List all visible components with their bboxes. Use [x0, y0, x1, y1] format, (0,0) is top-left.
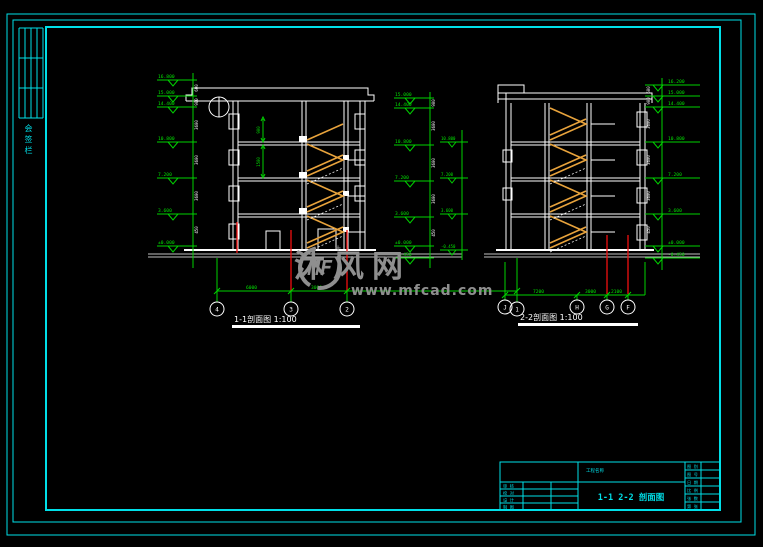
- segment-dim: 900: [194, 98, 199, 106]
- level-value: 10.800: [395, 139, 412, 145]
- section1-windows: [229, 114, 365, 239]
- level-value: 10.800: [158, 136, 175, 142]
- axis-number: 4: [215, 307, 219, 314]
- level-value: 10.800: [668, 136, 685, 142]
- titleblock-row-label: 审 核: [503, 483, 515, 490]
- level-value: 7.200: [441, 172, 454, 177]
- segment-dim: 450: [194, 226, 199, 234]
- segment-dim: 3600: [646, 191, 651, 201]
- svg-text:+: +: [335, 243, 341, 254]
- section1-title: 1-1剖面图 1:100: [234, 314, 297, 324]
- segment-dim: 900: [646, 97, 651, 105]
- level-value: 7.200: [668, 172, 682, 178]
- level-value: 14.400: [668, 101, 685, 107]
- level-value: 10.800: [441, 136, 456, 141]
- titleblock-row-label: 比 例: [687, 487, 698, 494]
- section1-door2: [266, 231, 280, 250]
- axis-letter: F: [626, 305, 630, 312]
- segment-dim: 3600: [431, 194, 436, 204]
- level-value: 14.400: [395, 102, 412, 108]
- section1-level-chain: 16.800 15.000 14.400 10.800 7.200 3.600 …: [157, 73, 199, 268]
- project-name-label: 工程名称: [586, 467, 604, 474]
- span-dim: 6000: [246, 285, 257, 291]
- segment-dim: 600: [194, 84, 199, 92]
- interior-dim: 900: [256, 126, 261, 134]
- segment-dim: 3600: [646, 155, 651, 165]
- svg-text:MF: MF: [307, 256, 333, 280]
- section2-title: 2-2剖面图 1:100: [520, 312, 583, 322]
- axis-letter: G: [605, 305, 609, 312]
- title-block: 工程名称 1-1 2-2 剖面图 审 核 校 对 设 计 制 图 图 别 图 号…: [500, 462, 720, 511]
- axis-number: 3: [289, 307, 293, 314]
- signature-strip-label: 会签栏: [23, 124, 34, 157]
- span-dim: 3000: [585, 289, 596, 295]
- level-value: 16.200: [668, 79, 685, 85]
- titleblock-row-label: 第 张: [687, 503, 699, 510]
- section2-stairs: [550, 108, 586, 252]
- level-value: 7.200: [395, 175, 409, 181]
- interior-dim: 1500: [256, 157, 261, 167]
- segment-dim: 3600: [646, 119, 651, 129]
- level-value: 15.000: [668, 90, 685, 96]
- level-value: 3.600: [668, 208, 682, 214]
- level-value: 3.600: [158, 208, 172, 214]
- level-value: 15.000: [158, 90, 175, 96]
- segment-dim: 3600: [431, 158, 436, 168]
- segment-dim: 600: [646, 86, 651, 94]
- level-value: 16.800: [158, 74, 175, 80]
- section2-right-level-chain: 16.200 15.000 14.400 10.800 7.200 3.600 …: [645, 78, 700, 270]
- level-value: ±0.000: [158, 240, 175, 246]
- segment-dim: 3600: [194, 120, 199, 130]
- section2-drawing: [484, 85, 700, 257]
- titleblock-row-label: 图 别: [687, 463, 698, 470]
- span-dim: 2100: [611, 289, 622, 295]
- level-value: 7.200: [158, 172, 172, 178]
- signature-strip-table: [19, 28, 43, 118]
- watermark-url: www.mfcad.com: [351, 283, 494, 299]
- titleblock-row-label: 校 对: [503, 490, 514, 497]
- level-value: 14.400: [158, 101, 175, 107]
- titleblock-row-label: 图 号: [687, 472, 698, 478]
- titleblock-row-label: 设 计: [503, 497, 514, 504]
- watermark: MF + 沐风网 www.mfcad.com: [294, 241, 494, 299]
- section1-title-underline: [232, 325, 360, 328]
- segment-dim: 3600: [431, 121, 436, 131]
- level-value: 3.600: [441, 208, 454, 213]
- segment-dim: 900: [431, 99, 436, 107]
- span-dim: 7200: [533, 289, 544, 295]
- segment-dim: 450: [431, 229, 436, 237]
- segment-dim: 450: [646, 226, 651, 234]
- segment-dim: 3600: [194, 155, 199, 165]
- titleblock-row-label: 日 期: [687, 480, 698, 486]
- mfcad-logo-icon: MF +: [294, 241, 346, 293]
- sheet-title: 1-1 2-2 剖面图: [598, 492, 664, 503]
- segment-dim: 3600: [194, 191, 199, 201]
- section2-windows: [503, 112, 647, 240]
- axis-letter: H: [575, 305, 579, 312]
- titleblock-row-label: 制 图: [503, 504, 514, 511]
- titleblock-row-label: 张 数: [687, 495, 699, 502]
- section1-interior-dims: 900 1500: [256, 117, 265, 178]
- cad-canvas: 16.800 15.000 14.400 10.800 7.200 3.600 …: [0, 0, 763, 547]
- level-value: ±0.000: [668, 240, 685, 246]
- section1-stairs: [307, 124, 343, 252]
- level-value: 3.600: [395, 211, 409, 217]
- level-value: -0.450: [668, 252, 685, 258]
- axis-letter: J: [503, 305, 507, 312]
- axis-number: 2: [345, 307, 349, 314]
- axis-number: 1: [515, 307, 519, 314]
- section2-title-underline: [518, 323, 638, 326]
- section2-bottom-dims: 7200 3000 2100 J H G F 2-2剖面图 1:100: [498, 262, 645, 326]
- level-value: 15.000: [395, 92, 412, 98]
